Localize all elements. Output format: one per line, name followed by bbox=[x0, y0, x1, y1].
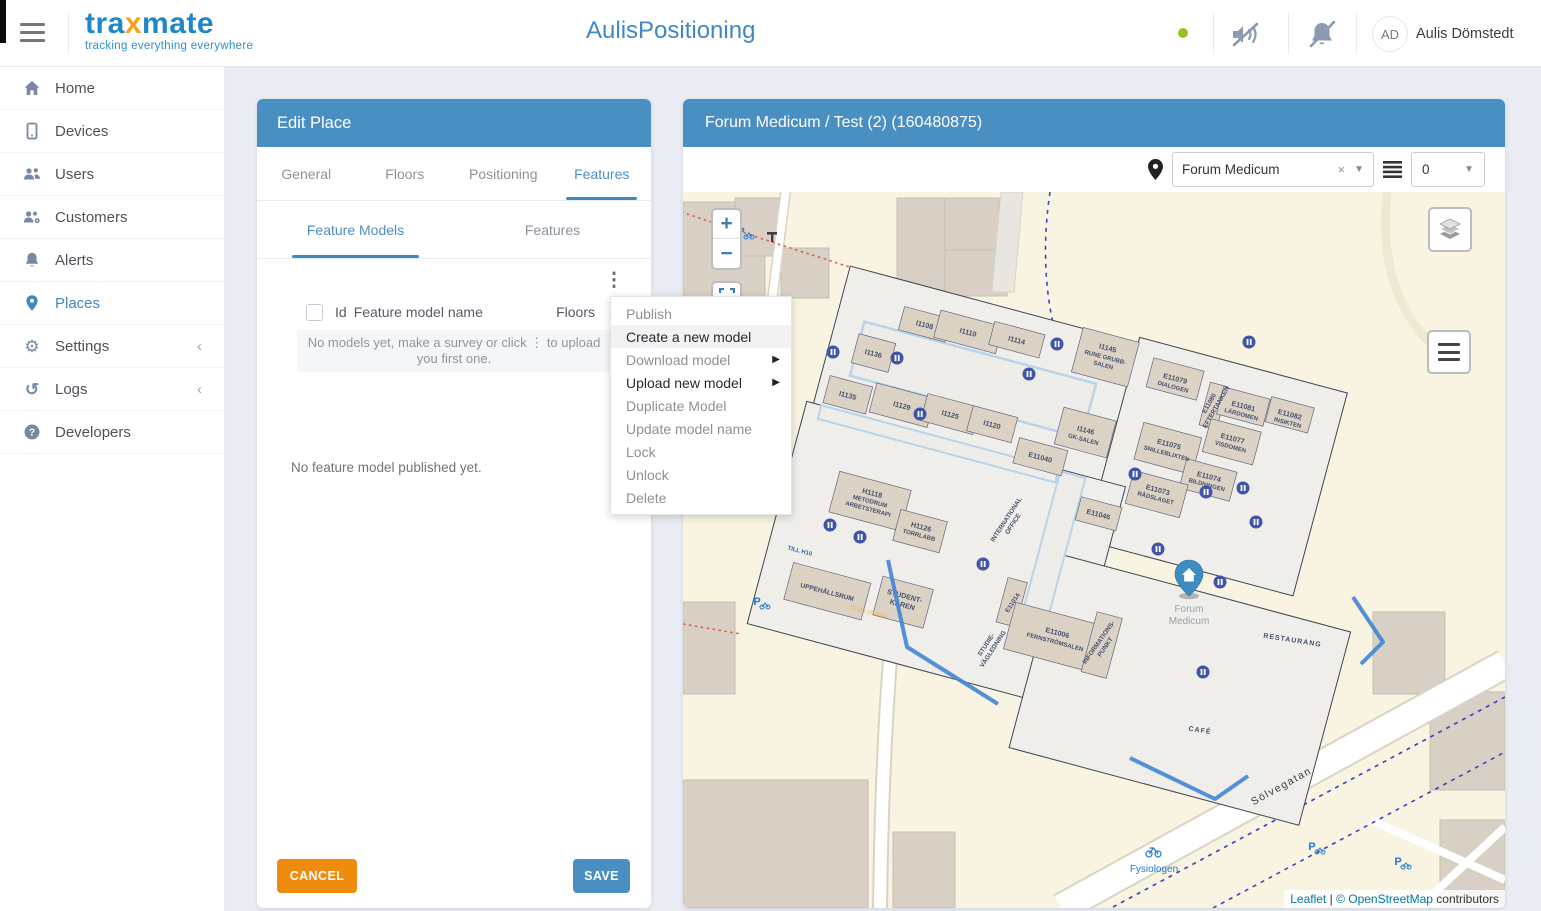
edit-place-panel: Edit Place General Floors Positioning Fe… bbox=[257, 99, 651, 908]
customers-icon bbox=[22, 207, 42, 227]
floor-select[interactable]: 0 ▼ bbox=[1411, 152, 1485, 187]
help-icon: ? bbox=[22, 422, 42, 442]
status-online-dot bbox=[1178, 28, 1188, 38]
menu-item-publish[interactable]: Publish bbox=[611, 302, 791, 325]
svg-text:P: P bbox=[1394, 856, 1401, 868]
edit-place-header: Edit Place bbox=[257, 99, 651, 147]
sidebar-item-customers[interactable]: Customers bbox=[0, 196, 224, 239]
menu-item-delete[interactable]: Delete bbox=[611, 486, 791, 509]
floor-list-icon[interactable] bbox=[1383, 161, 1402, 178]
users-icon bbox=[22, 164, 42, 184]
divider bbox=[1356, 12, 1357, 54]
sidebar-item-logs[interactable]: ↺ Logs ‹ bbox=[0, 368, 224, 411]
history-icon: ↺ bbox=[22, 379, 42, 399]
sound-muted-icon[interactable] bbox=[1229, 18, 1263, 50]
tab-general[interactable]: General bbox=[257, 147, 356, 200]
map-panel: Forum Medicum / Test (2) (160480875) For… bbox=[683, 99, 1505, 908]
zoom-out-button[interactable]: − bbox=[713, 239, 740, 268]
tab-positioning[interactable]: Positioning bbox=[454, 147, 553, 200]
svg-text:?: ? bbox=[29, 427, 35, 438]
page-title: AulisPositioning bbox=[586, 17, 755, 45]
device-icon bbox=[22, 121, 42, 141]
place-select[interactable]: Forum Medicum × ▼ bbox=[1172, 152, 1374, 187]
column-header-floors: Floors bbox=[556, 304, 595, 320]
divider bbox=[68, 12, 69, 54]
sidebar-item-developers[interactable]: ? Developers bbox=[0, 411, 224, 454]
top-header: traxmate tracking everything everywhere … bbox=[0, 0, 1541, 67]
layers-control[interactable] bbox=[1428, 207, 1472, 252]
traxmate-logo[interactable]: traxmate tracking everything everywhere bbox=[85, 9, 253, 52]
sidebar-nav: Home Devices Users Customers Alerts Plac… bbox=[0, 67, 225, 911]
map-attribution: Leaflet | © OpenStreetMap contributors bbox=[1284, 890, 1505, 908]
column-header-id: Id bbox=[335, 304, 347, 320]
svg-text:Fysiologen: Fysiologen bbox=[1130, 864, 1178, 875]
svg-text:Medicum: Medicum bbox=[1169, 616, 1210, 627]
sidebar-item-alerts[interactable]: Alerts bbox=[0, 239, 224, 282]
menu-item-create-new-model[interactable]: Create a new model bbox=[611, 325, 791, 348]
place-pin-icon bbox=[22, 293, 42, 313]
leaflet-link[interactable]: Leaflet bbox=[1290, 892, 1326, 906]
chevron-down-icon: ▼ bbox=[1464, 164, 1474, 175]
divider bbox=[1288, 12, 1289, 54]
screenshot-edge-artifact bbox=[0, 0, 6, 43]
sidebar-item-settings[interactable]: ⚙ Settings ‹ bbox=[0, 325, 224, 368]
no-published-message: No feature model published yet. bbox=[291, 460, 482, 475]
save-button[interactable]: SAVE bbox=[573, 859, 630, 893]
models-table-header: Id Feature model name Floors bbox=[257, 297, 651, 327]
menu-item-download-model[interactable]: Download model ▶ bbox=[611, 348, 791, 371]
svg-text:P: P bbox=[1308, 841, 1315, 853]
chevron-left-icon[interactable]: ‹ bbox=[197, 338, 202, 355]
location-pin-icon bbox=[1148, 159, 1163, 180]
osm-link[interactable]: © OpenStreetMap bbox=[1336, 892, 1433, 906]
alerts-muted-icon[interactable] bbox=[1305, 18, 1339, 50]
sidebar-item-users[interactable]: Users bbox=[0, 153, 224, 196]
map-panel-title: Forum Medicum / Test (2) (160480875) bbox=[705, 114, 982, 132]
features-subtabs: Feature Models Features bbox=[257, 201, 651, 259]
map-menu-button[interactable] bbox=[1427, 330, 1471, 374]
map-zoom-control: + − bbox=[711, 208, 742, 270]
leaflet-map[interactable]: I1108 I1110 I1114 I1136 I1135 I1129 I112… bbox=[683, 192, 1505, 908]
bell-icon bbox=[22, 250, 42, 270]
zoom-in-button[interactable]: + bbox=[713, 210, 740, 239]
menu-item-upload-new-model[interactable]: Upload new model ▶ bbox=[611, 371, 791, 394]
map-panel-header: Forum Medicum / Test (2) (160480875) bbox=[683, 99, 1505, 147]
cancel-button[interactable]: CANCEL bbox=[277, 859, 357, 893]
edit-place-title: Edit Place bbox=[277, 114, 351, 133]
model-actions-kebab-icon[interactable]: ⋮ bbox=[601, 267, 627, 295]
clear-selection-icon[interactable]: × bbox=[1338, 162, 1346, 177]
divider bbox=[1213, 12, 1214, 54]
submenu-arrow-icon: ▶ bbox=[772, 377, 780, 388]
edit-place-tabs: General Floors Positioning Features bbox=[257, 147, 651, 201]
map-canvas: I1108 I1110 I1114 I1136 I1135 I1129 I112… bbox=[683, 192, 1505, 908]
subtab-feature-models[interactable]: Feature Models bbox=[257, 201, 454, 258]
svg-text:Forum: Forum bbox=[1175, 604, 1204, 615]
svg-text:P: P bbox=[753, 596, 760, 608]
chevron-left-icon[interactable]: ‹ bbox=[197, 381, 202, 398]
model-actions-context-menu: Publish Create a new model Download mode… bbox=[610, 296, 792, 515]
home-icon bbox=[22, 78, 42, 98]
subtab-features[interactable]: Features bbox=[454, 201, 651, 258]
column-header-name: Feature model name bbox=[354, 304, 483, 320]
menu-item-update-model-name[interactable]: Update model name bbox=[611, 417, 791, 440]
submenu-arrow-icon: ▶ bbox=[772, 354, 780, 365]
menu-item-unlock[interactable]: Unlock bbox=[611, 463, 791, 486]
layers-icon bbox=[1437, 217, 1463, 243]
hamburger-menu-icon[interactable] bbox=[20, 23, 45, 43]
user-name[interactable]: Aulis Dömstedt bbox=[1416, 26, 1514, 42]
chevron-down-icon: ▼ bbox=[1354, 164, 1364, 175]
map-toolbar: Forum Medicum × ▼ 0 ▼ bbox=[683, 147, 1505, 192]
sidebar-item-places[interactable]: Places bbox=[0, 282, 224, 325]
menu-item-lock[interactable]: Lock bbox=[611, 440, 791, 463]
tab-features[interactable]: Features bbox=[553, 147, 652, 200]
logo-tagline: tracking everything everywhere bbox=[85, 40, 253, 52]
user-avatar[interactable]: AD bbox=[1372, 16, 1408, 52]
empty-models-message: No models yet, make a survey or click ⋮ … bbox=[297, 330, 611, 372]
sidebar-item-home[interactable]: Home bbox=[0, 67, 224, 110]
tab-floors[interactable]: Floors bbox=[356, 147, 455, 200]
gear-icon: ⚙ bbox=[22, 336, 42, 356]
sidebar-item-devices[interactable]: Devices bbox=[0, 110, 224, 153]
menu-item-duplicate-model[interactable]: Duplicate Model bbox=[611, 394, 791, 417]
select-all-checkbox[interactable] bbox=[306, 304, 323, 321]
